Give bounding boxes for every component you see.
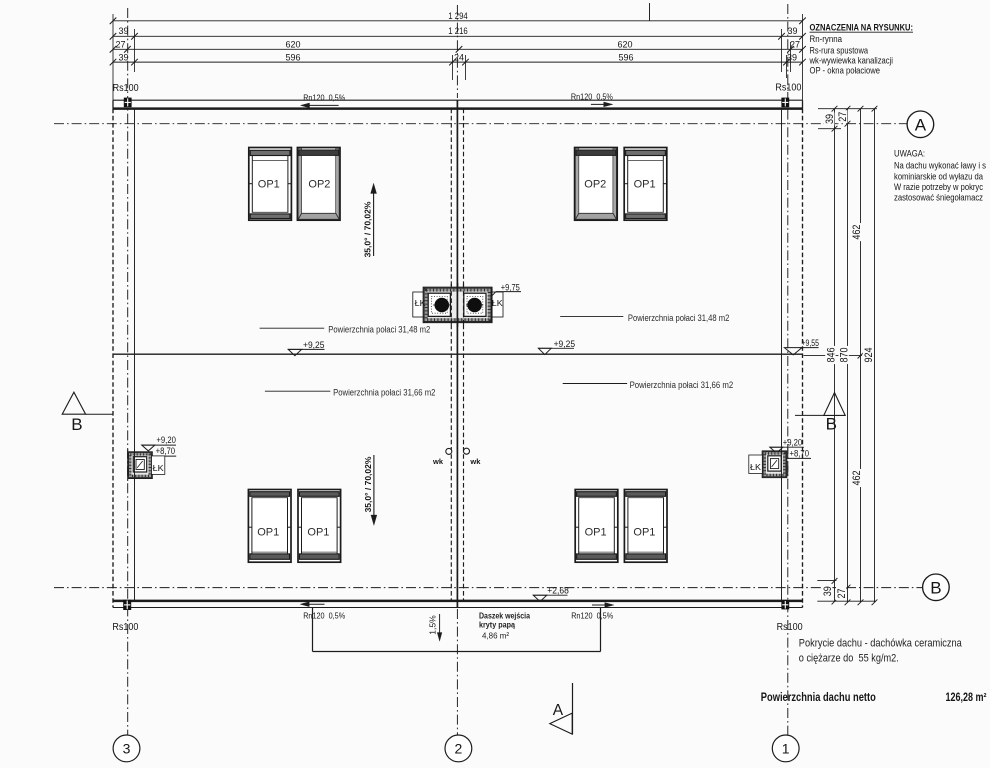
- svg-text:462: 462: [851, 470, 863, 485]
- svg-text:Powierzchnia połaci 31,48 m2: Powierzchnia połaci 31,48 m2: [328, 325, 430, 335]
- svg-text:Rn120 0,5%: Rn120 0,5%: [303, 611, 345, 621]
- svg-text:39: 39: [822, 586, 834, 596]
- svg-text:Pokrycie dachu - dachówka cera: Pokrycie dachu - dachówka ceramiczna: [799, 638, 963, 650]
- svg-text:+9,55: +9,55: [802, 338, 820, 348]
- svg-text:wk: wk: [432, 457, 444, 466]
- svg-text:o ciężarze do 55 kg/m2.: o ciężarze do 55 kg/m2.: [799, 652, 899, 664]
- svg-text:+2,68: +2,68: [547, 586, 569, 596]
- svg-text:OP1: OP1: [307, 527, 329, 539]
- svg-text:OP1: OP1: [585, 527, 607, 539]
- svg-text:27: 27: [790, 40, 800, 50]
- svg-text:Powierzchnia dachu netto: Powierzchnia dachu netto: [761, 692, 876, 704]
- svg-text:zastosować śniegołamacz: zastosować śniegołamacz: [894, 192, 983, 202]
- svg-text:OZNACZENIA NA RYSUNKU:: OZNACZENIA NA RYSUNKU:: [810, 22, 914, 32]
- svg-text:wk: wk: [469, 457, 481, 466]
- svg-text:A: A: [553, 702, 564, 719]
- svg-text:35,0° / 70,02%: 35,0° / 70,02%: [363, 201, 373, 257]
- svg-text:Rs100: Rs100: [777, 621, 803, 633]
- svg-text:A: A: [915, 116, 927, 135]
- svg-text:35,0° / 70,02%: 35,0° / 70,02%: [363, 456, 373, 512]
- svg-text:OP1: OP1: [633, 527, 655, 539]
- svg-text:+8,70: +8,70: [156, 446, 176, 456]
- svg-text:39: 39: [118, 26, 128, 36]
- svg-text:ŁK: ŁK: [492, 298, 503, 308]
- svg-text:620: 620: [617, 40, 632, 50]
- svg-text:Rn120 0,5%: Rn120 0,5%: [303, 93, 345, 103]
- svg-text:Na dachu wykonać ławy i s: Na dachu wykonać ławy i s: [894, 161, 986, 171]
- svg-text:620: 620: [285, 40, 300, 50]
- svg-text:27: 27: [115, 40, 125, 50]
- svg-text:Powierzchnia połaci 31,48 m2: Powierzchnia połaci 31,48 m2: [628, 313, 730, 323]
- svg-text:39: 39: [118, 52, 128, 62]
- svg-text:4,86 m²: 4,86 m²: [482, 631, 509, 641]
- svg-text:kominiarskie od wyłazu da: kominiarskie od wyłazu da: [894, 171, 983, 181]
- svg-text:OP - okna połaciowe: OP - okna połaciowe: [810, 65, 881, 75]
- svg-text:OP2: OP2: [308, 178, 330, 190]
- svg-text:OP2: OP2: [584, 178, 606, 190]
- svg-text:B: B: [826, 414, 837, 433]
- svg-text:+9,20: +9,20: [783, 437, 803, 447]
- svg-text:870: 870: [839, 347, 851, 362]
- svg-text:1,5%: 1,5%: [427, 615, 437, 635]
- svg-text:Rs100: Rs100: [775, 82, 801, 94]
- svg-text:+9,20: +9,20: [156, 435, 176, 445]
- svg-text:kryty papą: kryty papą: [479, 620, 515, 630]
- svg-text:846: 846: [825, 347, 837, 362]
- svg-text:Powierzchnia połaci 31,66 m2: Powierzchnia połaci 31,66 m2: [333, 388, 435, 398]
- svg-text:39: 39: [787, 26, 797, 36]
- svg-text:27: 27: [837, 112, 849, 122]
- svg-text:B: B: [71, 415, 82, 434]
- svg-text:UWAGA:: UWAGA:: [894, 148, 925, 158]
- svg-text:OP1: OP1: [257, 527, 279, 539]
- svg-text:39: 39: [787, 52, 797, 62]
- svg-text:462: 462: [851, 225, 863, 240]
- svg-text:924: 924: [863, 347, 875, 362]
- svg-text:24: 24: [454, 52, 464, 62]
- svg-text:39: 39: [824, 114, 836, 124]
- svg-text:ŁK: ŁK: [750, 462, 761, 472]
- svg-text:1 294: 1 294: [448, 11, 468, 21]
- svg-text:+9,25: +9,25: [554, 339, 576, 349]
- svg-text:wk-wywiewka kanalizacji: wk-wywiewka kanalizacji: [809, 55, 893, 65]
- svg-text:Rn-rynna: Rn-rynna: [810, 34, 843, 44]
- svg-text:B: B: [930, 579, 941, 598]
- svg-text:1 216: 1 216: [448, 26, 468, 36]
- svg-text:OP1: OP1: [258, 178, 280, 190]
- svg-text:+9,25: +9,25: [303, 340, 325, 350]
- svg-text:Rs100: Rs100: [112, 621, 138, 633]
- svg-text:OP1: OP1: [634, 178, 656, 190]
- svg-text:2: 2: [455, 740, 463, 756]
- svg-text:126,28 m²: 126,28 m²: [946, 692, 987, 704]
- svg-text:596: 596: [285, 52, 300, 62]
- svg-text:ŁK: ŁK: [415, 298, 426, 308]
- svg-text:Rs-rura spustowa: Rs-rura spustowa: [810, 46, 869, 56]
- svg-text:3: 3: [123, 740, 131, 756]
- svg-text:1: 1: [782, 740, 790, 756]
- svg-text:596: 596: [618, 52, 633, 62]
- svg-text:Powierzchnia połaci 31,66 m2: Powierzchnia połaci 31,66 m2: [630, 380, 734, 390]
- svg-text:+8,70: +8,70: [790, 449, 810, 459]
- svg-text:Rn120 0,5%: Rn120 0,5%: [571, 92, 613, 102]
- svg-text:W razie potrzeby w pokryc: W razie potrzeby w pokryc: [894, 182, 983, 192]
- svg-text:Rs100: Rs100: [113, 82, 139, 94]
- svg-text:Rn120 0,5%: Rn120 0,5%: [571, 611, 613, 621]
- svg-text:ŁK: ŁK: [153, 463, 164, 473]
- svg-text:+9,75: +9,75: [501, 283, 520, 293]
- svg-text:27: 27: [836, 589, 848, 599]
